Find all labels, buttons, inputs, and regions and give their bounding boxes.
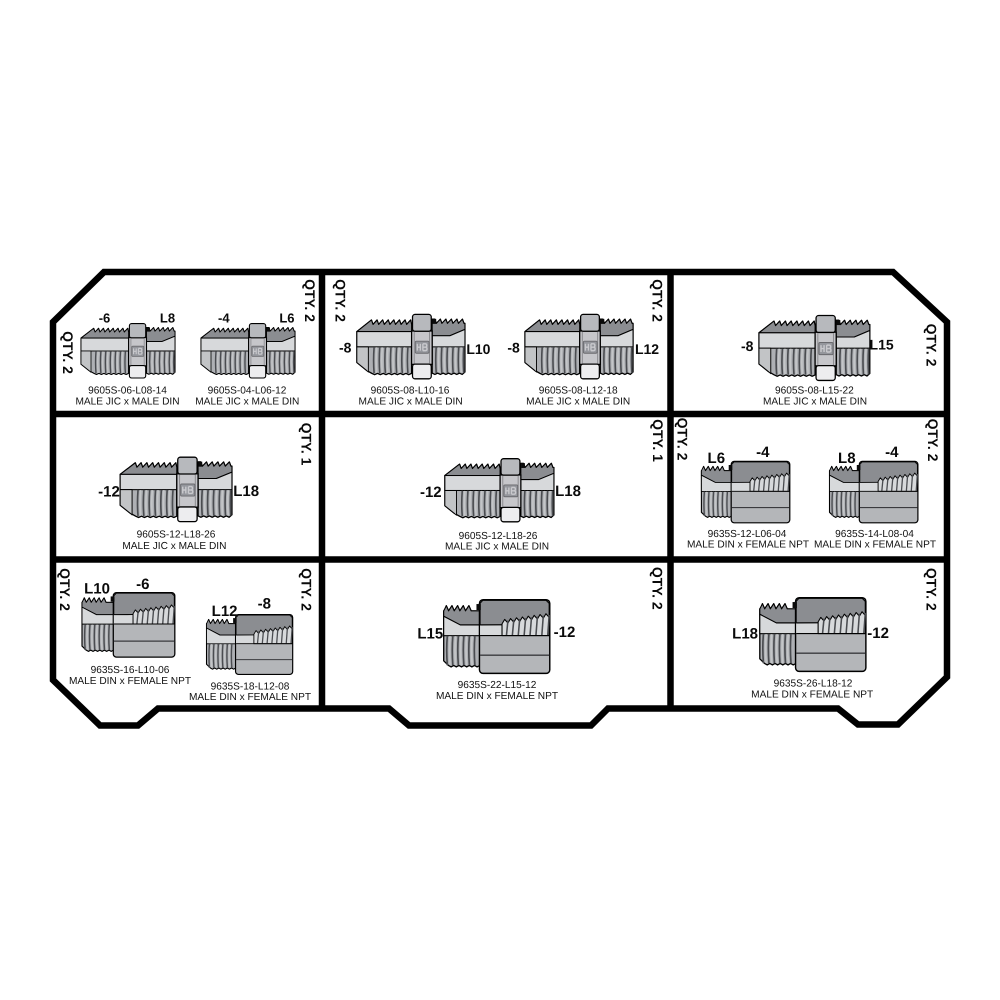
svg-text:9605S-06-L08-14: 9605S-06-L08-14	[88, 385, 167, 396]
svg-text:L15: L15	[417, 626, 443, 643]
svg-text:L6: L6	[279, 311, 294, 326]
svg-text:9635S-22-L15-12: 9635S-22-L15-12	[458, 680, 537, 691]
svg-text:9635S-14-L08-04: 9635S-14-L08-04	[835, 529, 914, 540]
svg-text:L6: L6	[708, 450, 726, 467]
svg-text:-8: -8	[339, 340, 352, 356]
svg-text:L12: L12	[212, 603, 238, 620]
svg-text:-8: -8	[741, 338, 754, 354]
svg-text:MALE JIC x MALE DIN: MALE JIC x MALE DIN	[195, 397, 299, 408]
svg-text:-12: -12	[867, 625, 889, 642]
svg-text:QTY. 2: QTY. 2	[675, 418, 691, 461]
svg-text:QTY. 2: QTY. 2	[302, 279, 318, 322]
svg-text:QTY. 2: QTY. 2	[923, 568, 939, 611]
svg-text:-6: -6	[136, 576, 149, 593]
svg-text:MALE DIN x FEMALE NPT: MALE DIN x FEMALE NPT	[751, 690, 873, 701]
svg-text:MALE JIC x MALE DIN: MALE JIC x MALE DIN	[445, 541, 549, 552]
svg-text:9605S-12-L18-26: 9605S-12-L18-26	[459, 531, 538, 542]
svg-text:MALE JIC x MALE DIN: MALE JIC x MALE DIN	[359, 397, 463, 408]
svg-text:-4: -4	[218, 311, 230, 326]
svg-text:QTY. 2: QTY. 2	[924, 324, 940, 367]
svg-text:L12: L12	[635, 341, 659, 357]
svg-text:9605S-04-L06-12: 9605S-04-L06-12	[208, 385, 287, 396]
svg-text:MALE JIC x MALE DIN: MALE JIC x MALE DIN	[763, 397, 867, 408]
svg-text:MALE DIN x FEMALE NPT: MALE DIN x FEMALE NPT	[189, 692, 311, 703]
svg-text:QTY. 2: QTY. 2	[650, 279, 666, 322]
svg-text:9635S-26-L18-12: 9635S-26-L18-12	[774, 678, 853, 689]
svg-text:-6: -6	[99, 311, 111, 326]
svg-text:MALE DIN x FEMALE NPT: MALE DIN x FEMALE NPT	[687, 540, 809, 551]
svg-text:QTY. 2: QTY. 2	[60, 331, 76, 374]
svg-text:QTY. 2: QTY. 2	[333, 279, 349, 322]
svg-text:QTY. 2: QTY. 2	[925, 419, 941, 462]
svg-text:L18: L18	[732, 626, 758, 643]
svg-text:9635S-16-L10-06: 9635S-16-L10-06	[91, 665, 170, 676]
svg-text:L10: L10	[466, 341, 490, 357]
svg-text:MALE DIN x FEMALE NPT: MALE DIN x FEMALE NPT	[814, 540, 936, 551]
svg-text:-12: -12	[98, 484, 120, 501]
svg-text:MALE JIC x MALE DIN: MALE JIC x MALE DIN	[122, 541, 226, 552]
svg-text:MALE DIN x FEMALE NPT: MALE DIN x FEMALE NPT	[436, 691, 558, 702]
svg-text:9635S-12-L06-04: 9635S-12-L06-04	[708, 529, 787, 540]
svg-text:QTY. 2: QTY. 2	[57, 568, 73, 611]
svg-text:-8: -8	[507, 340, 520, 356]
svg-text:L18: L18	[555, 483, 581, 500]
svg-text:MALE JIC x MALE DIN: MALE JIC x MALE DIN	[526, 397, 630, 408]
svg-text:QTY. 2: QTY. 2	[298, 568, 314, 611]
svg-text:MALE JIC x MALE DIN: MALE JIC x MALE DIN	[75, 397, 179, 408]
svg-text:QTY. 2: QTY. 2	[649, 567, 665, 610]
svg-text:-12: -12	[554, 624, 576, 641]
svg-text:MALE DIN x FEMALE NPT: MALE DIN x FEMALE NPT	[69, 676, 191, 687]
svg-text:-4: -4	[756, 444, 770, 461]
svg-text:9605S-08-L12-18: 9605S-08-L12-18	[539, 385, 618, 396]
svg-text:9635S-18-L12-08: 9635S-18-L12-08	[211, 682, 290, 693]
svg-text:L18: L18	[233, 483, 259, 500]
svg-text:QTY. 1: QTY. 1	[650, 419, 666, 462]
svg-text:L10: L10	[84, 581, 110, 598]
svg-text:L8: L8	[160, 311, 175, 326]
svg-text:-12: -12	[420, 484, 442, 501]
svg-text:L15: L15	[870, 337, 894, 353]
svg-text:9605S-08-L10-16: 9605S-08-L10-16	[371, 385, 450, 396]
svg-text:9605S-12-L18-26: 9605S-12-L18-26	[137, 530, 216, 541]
svg-text:9605S-08-L15-22: 9605S-08-L15-22	[775, 385, 854, 396]
svg-text:QTY. 1: QTY. 1	[299, 423, 315, 466]
svg-text:-4: -4	[885, 444, 899, 461]
svg-text:L8: L8	[838, 450, 856, 467]
svg-text:-8: -8	[258, 596, 271, 613]
